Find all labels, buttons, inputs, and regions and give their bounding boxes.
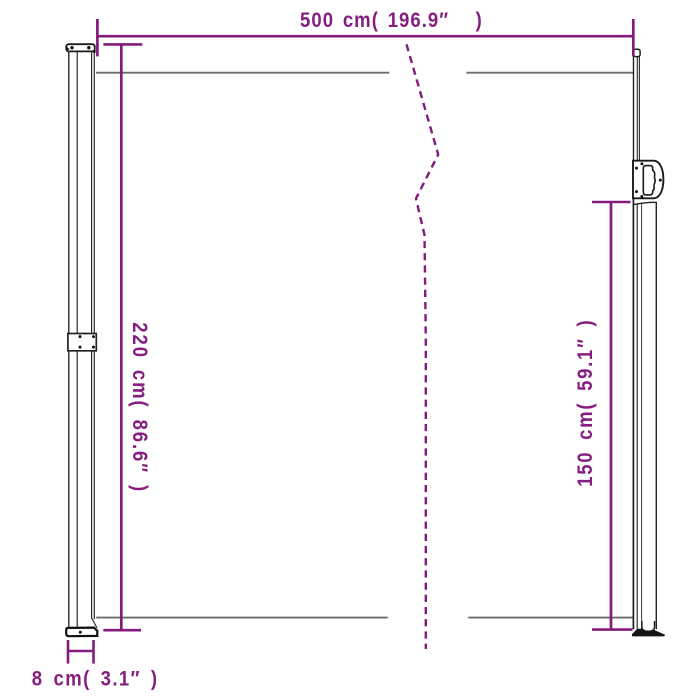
svg-text:220 cm( 86.6″ ): 220 cm( 86.6″ ) <box>128 322 151 493</box>
svg-text:150 cm( 59.1″ ): 150 cm( 59.1″ ) <box>574 319 597 487</box>
svg-text:8 cm( 3.1″ ): 8 cm( 3.1″ ) <box>32 667 159 690</box>
svg-text:500 cm( 196.9″ ): 500 cm( 196.9″ ) <box>300 9 483 32</box>
